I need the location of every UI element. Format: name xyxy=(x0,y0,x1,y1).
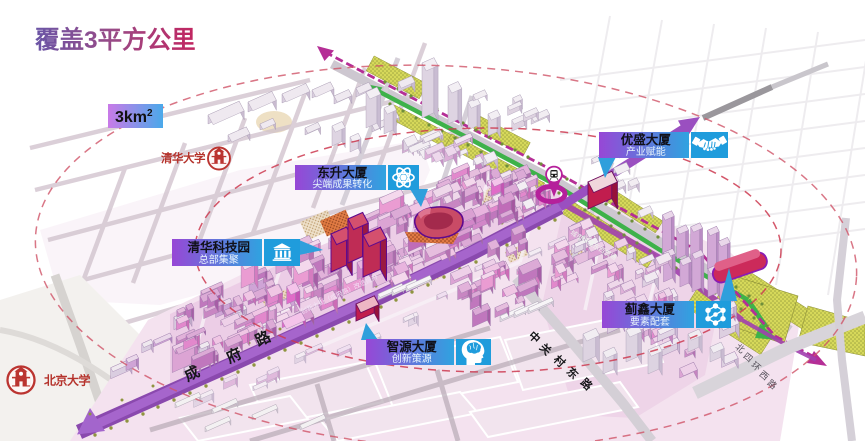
svg-text:要素配套: 要素配套 xyxy=(630,315,670,328)
svg-text:优盛大厦: 优盛大厦 xyxy=(621,132,672,147)
svg-text:尖端成果转化: 尖端成果转化 xyxy=(312,177,372,190)
svg-text:蓟鑫大厦: 蓟鑫大厦 xyxy=(624,302,676,317)
svg-text:东升大厦: 东升大厦 xyxy=(317,165,368,180)
svg-text:清华大学: 清华大学 xyxy=(161,151,206,165)
svg-text:清华科技园: 清华科技园 xyxy=(188,240,251,255)
svg-text:北京大学: 北京大学 xyxy=(44,373,91,388)
svg-text:创新策源: 创新策源 xyxy=(392,352,432,365)
svg-text:总部集聚: 总部集聚 xyxy=(199,253,239,266)
svg-text:覆盖3平方公里: 覆盖3平方公里 xyxy=(34,25,196,54)
svg-text:产业赋能: 产业赋能 xyxy=(626,145,666,158)
svg-text:智源大厦: 智源大厦 xyxy=(386,339,438,354)
